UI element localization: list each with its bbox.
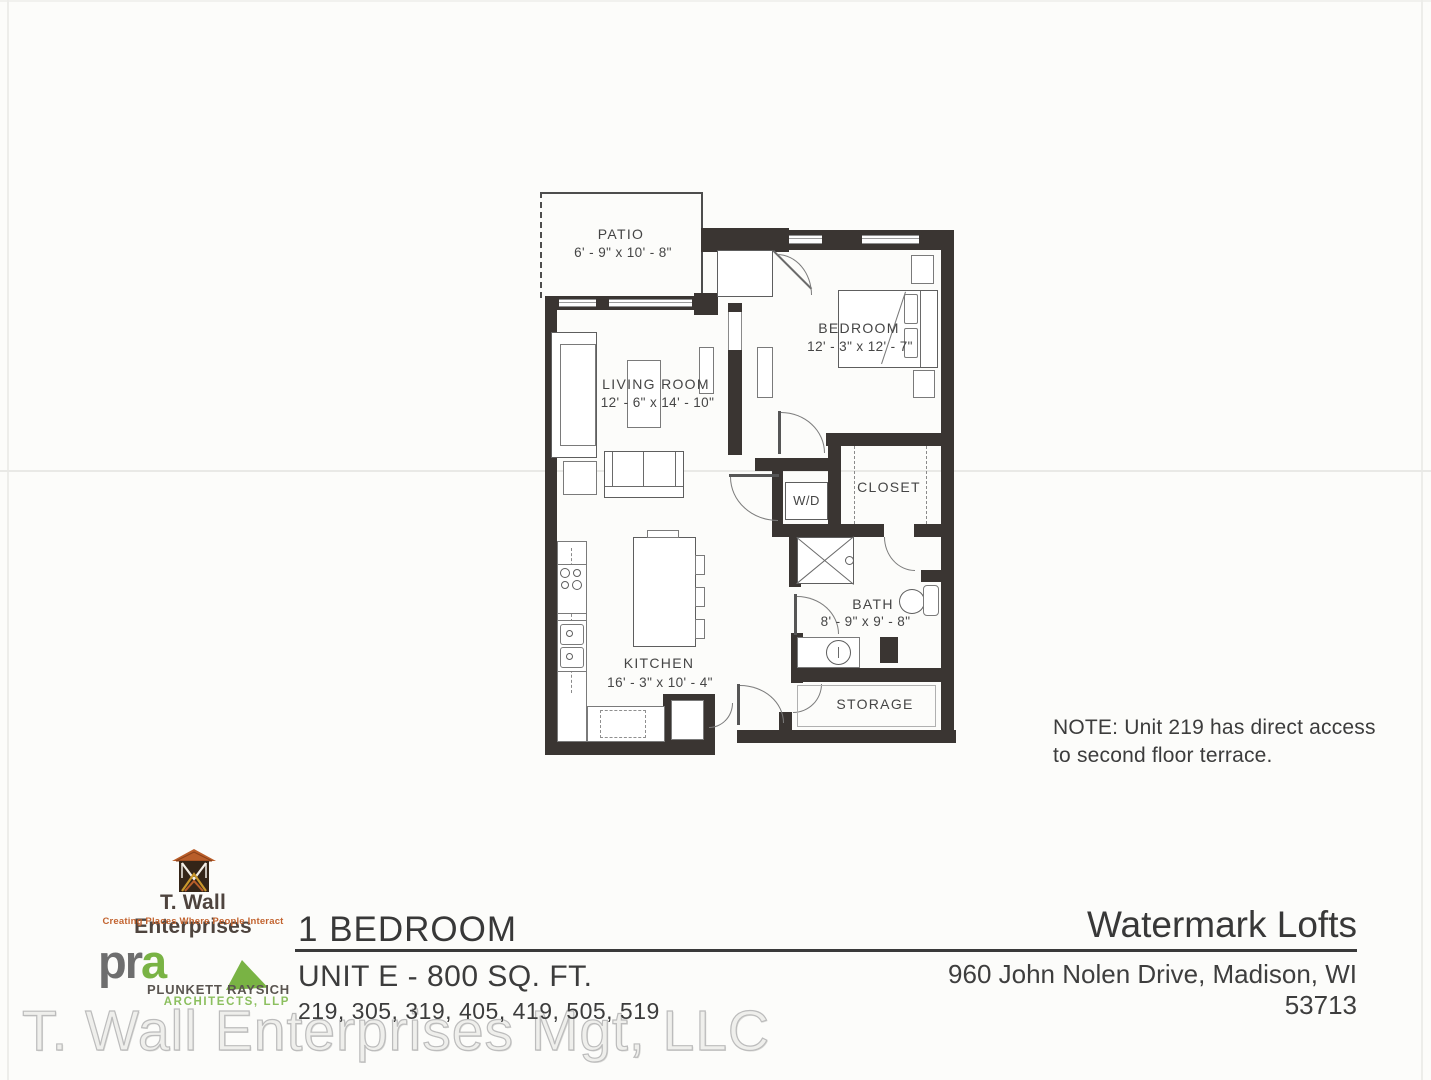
wall-right <box>941 231 954 743</box>
kitchen-label: KITCHEN <box>609 655 709 671</box>
plan-type-title: 1 BEDROOM <box>298 910 517 950</box>
footer-divider <box>295 949 1357 952</box>
hall-door-arc <box>730 477 778 521</box>
closet-door-arc <box>884 537 915 571</box>
stool-3 <box>695 619 705 639</box>
shower-head <box>845 556 854 565</box>
wall-bottom-right <box>737 730 956 743</box>
coffee-table <box>627 360 661 428</box>
architect-firm-line1: PLUNKETT RAYSICH <box>140 982 290 997</box>
unit-numbers: 219, 305, 319, 405, 419, 505, 519 <box>298 998 660 1025</box>
stool-1 <box>695 555 705 575</box>
loveseat-divider <box>643 452 644 486</box>
bedroom-door-arc <box>781 412 825 453</box>
scan-edge-left <box>7 0 9 1080</box>
unit-info: UNIT E - 800 SQ. FT. <box>298 960 593 994</box>
burner-2 <box>573 569 581 577</box>
toilet-tank <box>923 585 939 616</box>
scan-edge-right <box>1421 0 1423 1080</box>
pra-wordmark: pra <box>98 938 165 985</box>
patio-label: PATIO <box>561 226 681 242</box>
loveseat-arm-left <box>612 452 613 486</box>
architect-firm-line2: ARCHITECTS, LLP <box>140 996 290 1008</box>
burner-3 <box>561 581 569 589</box>
bed-headboard-line <box>920 291 921 367</box>
stool-2 <box>695 587 705 607</box>
pra-wordmark-pr: pr <box>98 935 141 988</box>
wall-wd-bottom <box>772 524 830 537</box>
loveseat-arm-right <box>675 452 676 486</box>
washer-dryer-label: W/D <box>793 493 820 508</box>
sofa-cushions <box>560 344 596 446</box>
bedroom-dims: 12' - 3" x 12' - 7" <box>795 339 925 354</box>
scan-line <box>0 470 1431 472</box>
wall-bedroom-top-west <box>701 228 789 252</box>
living-room-dims: 12' - 6" x 14' - 10" <box>595 395 720 410</box>
pier-door-arc <box>709 703 733 728</box>
pra-wordmark-a: a <box>141 935 165 988</box>
wall-living-top-corner <box>694 293 718 315</box>
kitchen-dims: 16' - 3" x 10' - 4" <box>600 675 720 690</box>
wall-wd-top <box>755 458 830 471</box>
nightstand-bottom <box>913 370 935 398</box>
wall-bath-stub <box>880 637 898 663</box>
wall-bath-storage <box>791 668 943 682</box>
developer-tagline: Creating Places Where People Interact <box>94 916 292 927</box>
cased-opening <box>728 312 742 350</box>
entry-closet-door-arc <box>777 254 812 295</box>
plan-note-line1: NOTE: Unit 219 has direct access <box>1053 714 1376 742</box>
entry-door-arc <box>740 685 784 723</box>
bedroom-window-1 <box>789 235 822 244</box>
pier-cabinet <box>671 700 704 740</box>
scanned-floor-plan-page: PATIO 6' - 9" x 10' - 8" <box>0 0 1431 1080</box>
entry-closet-box <box>717 250 773 297</box>
wall-bedroom-bottom <box>826 433 954 446</box>
loveseat-back-line <box>605 486 683 487</box>
plan-note-line2: to second floor terrace. <box>1053 742 1376 770</box>
living-window-1 <box>559 299 596 307</box>
burner-1 <box>560 568 570 578</box>
bedroom-label: BEDROOM <box>799 320 919 336</box>
vanity-faucet <box>838 647 839 658</box>
sink-drain-2 <box>566 653 573 660</box>
kitchen-island <box>633 537 696 647</box>
bath-label: BATH <box>833 596 913 612</box>
washer-dryer: W/D <box>785 482 828 520</box>
storage-label: STORAGE <box>825 696 925 712</box>
closet-label: CLOSET <box>844 479 934 495</box>
developer-name: T. Wall Enterprises <box>104 891 282 939</box>
nightstand-top <box>911 255 934 284</box>
end-table <box>563 461 597 495</box>
plan-note: NOTE: Unit 219 has direct access to seco… <box>1053 714 1376 770</box>
sink-drain-1 <box>566 630 573 637</box>
island-tab <box>647 530 679 538</box>
property-name: Watermark Lofts <box>900 904 1357 946</box>
wall-closet-bottom-a <box>826 524 884 537</box>
dishwasher <box>600 710 646 738</box>
bath-dims: 8' - 9" x 9' - 8" <box>808 614 923 629</box>
scan-edge-top <box>0 0 1431 2</box>
property-address: 960 John Nolen Drive, Madison, WI 53713 <box>900 959 1357 1021</box>
living-window-2 <box>609 299 692 307</box>
burner-4 <box>572 580 582 590</box>
patio-dims: 6' - 9" x 10' - 8" <box>553 245 693 260</box>
console-bedroom <box>757 347 773 398</box>
living-room-label: LIVING ROOM <box>596 376 716 392</box>
bedroom-window-2 <box>862 235 919 244</box>
twall-tower-icon <box>172 848 216 894</box>
wall-toilet-pier <box>921 570 941 582</box>
loveseat <box>604 451 684 498</box>
wall-closet-bottom-b <box>914 524 954 537</box>
